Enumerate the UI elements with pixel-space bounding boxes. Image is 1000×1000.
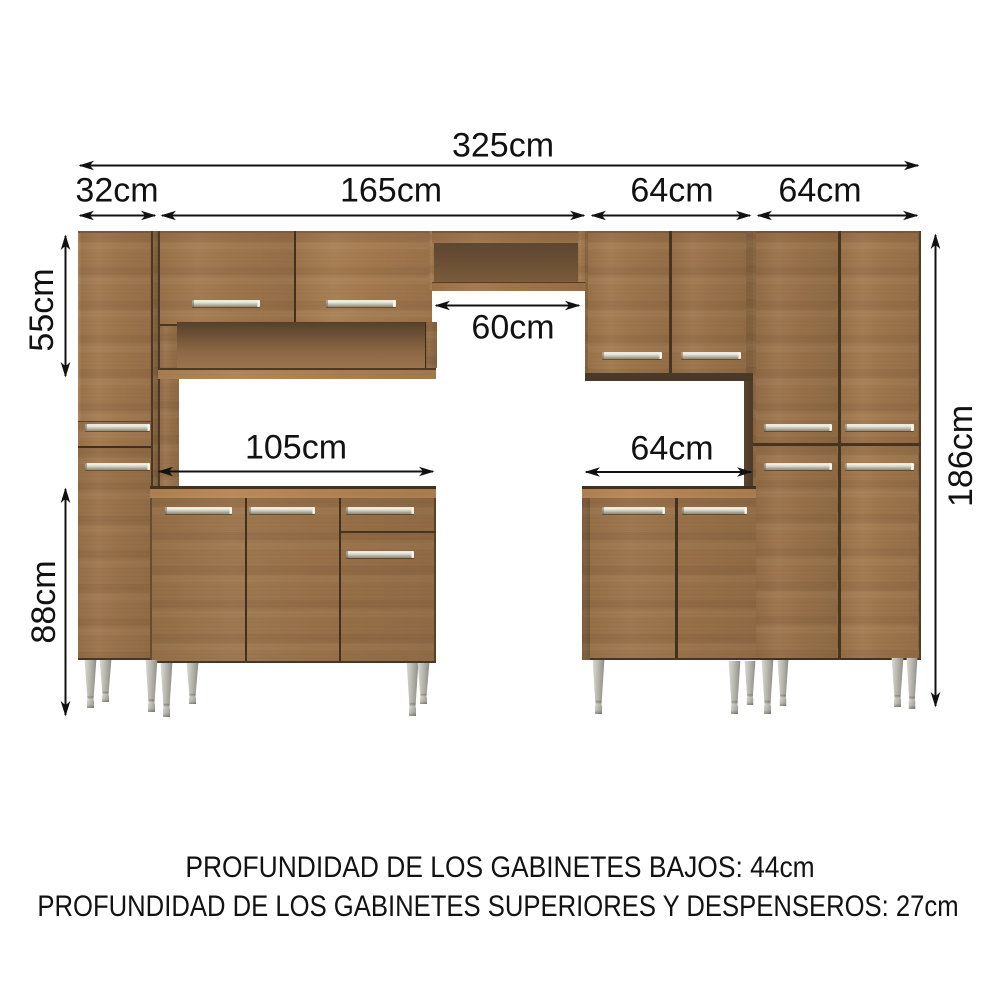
svg-text:186cm: 186cm — [942, 405, 980, 507]
svg-text:88cm: 88cm — [25, 560, 63, 643]
svg-text:55cm: 55cm — [23, 268, 61, 351]
